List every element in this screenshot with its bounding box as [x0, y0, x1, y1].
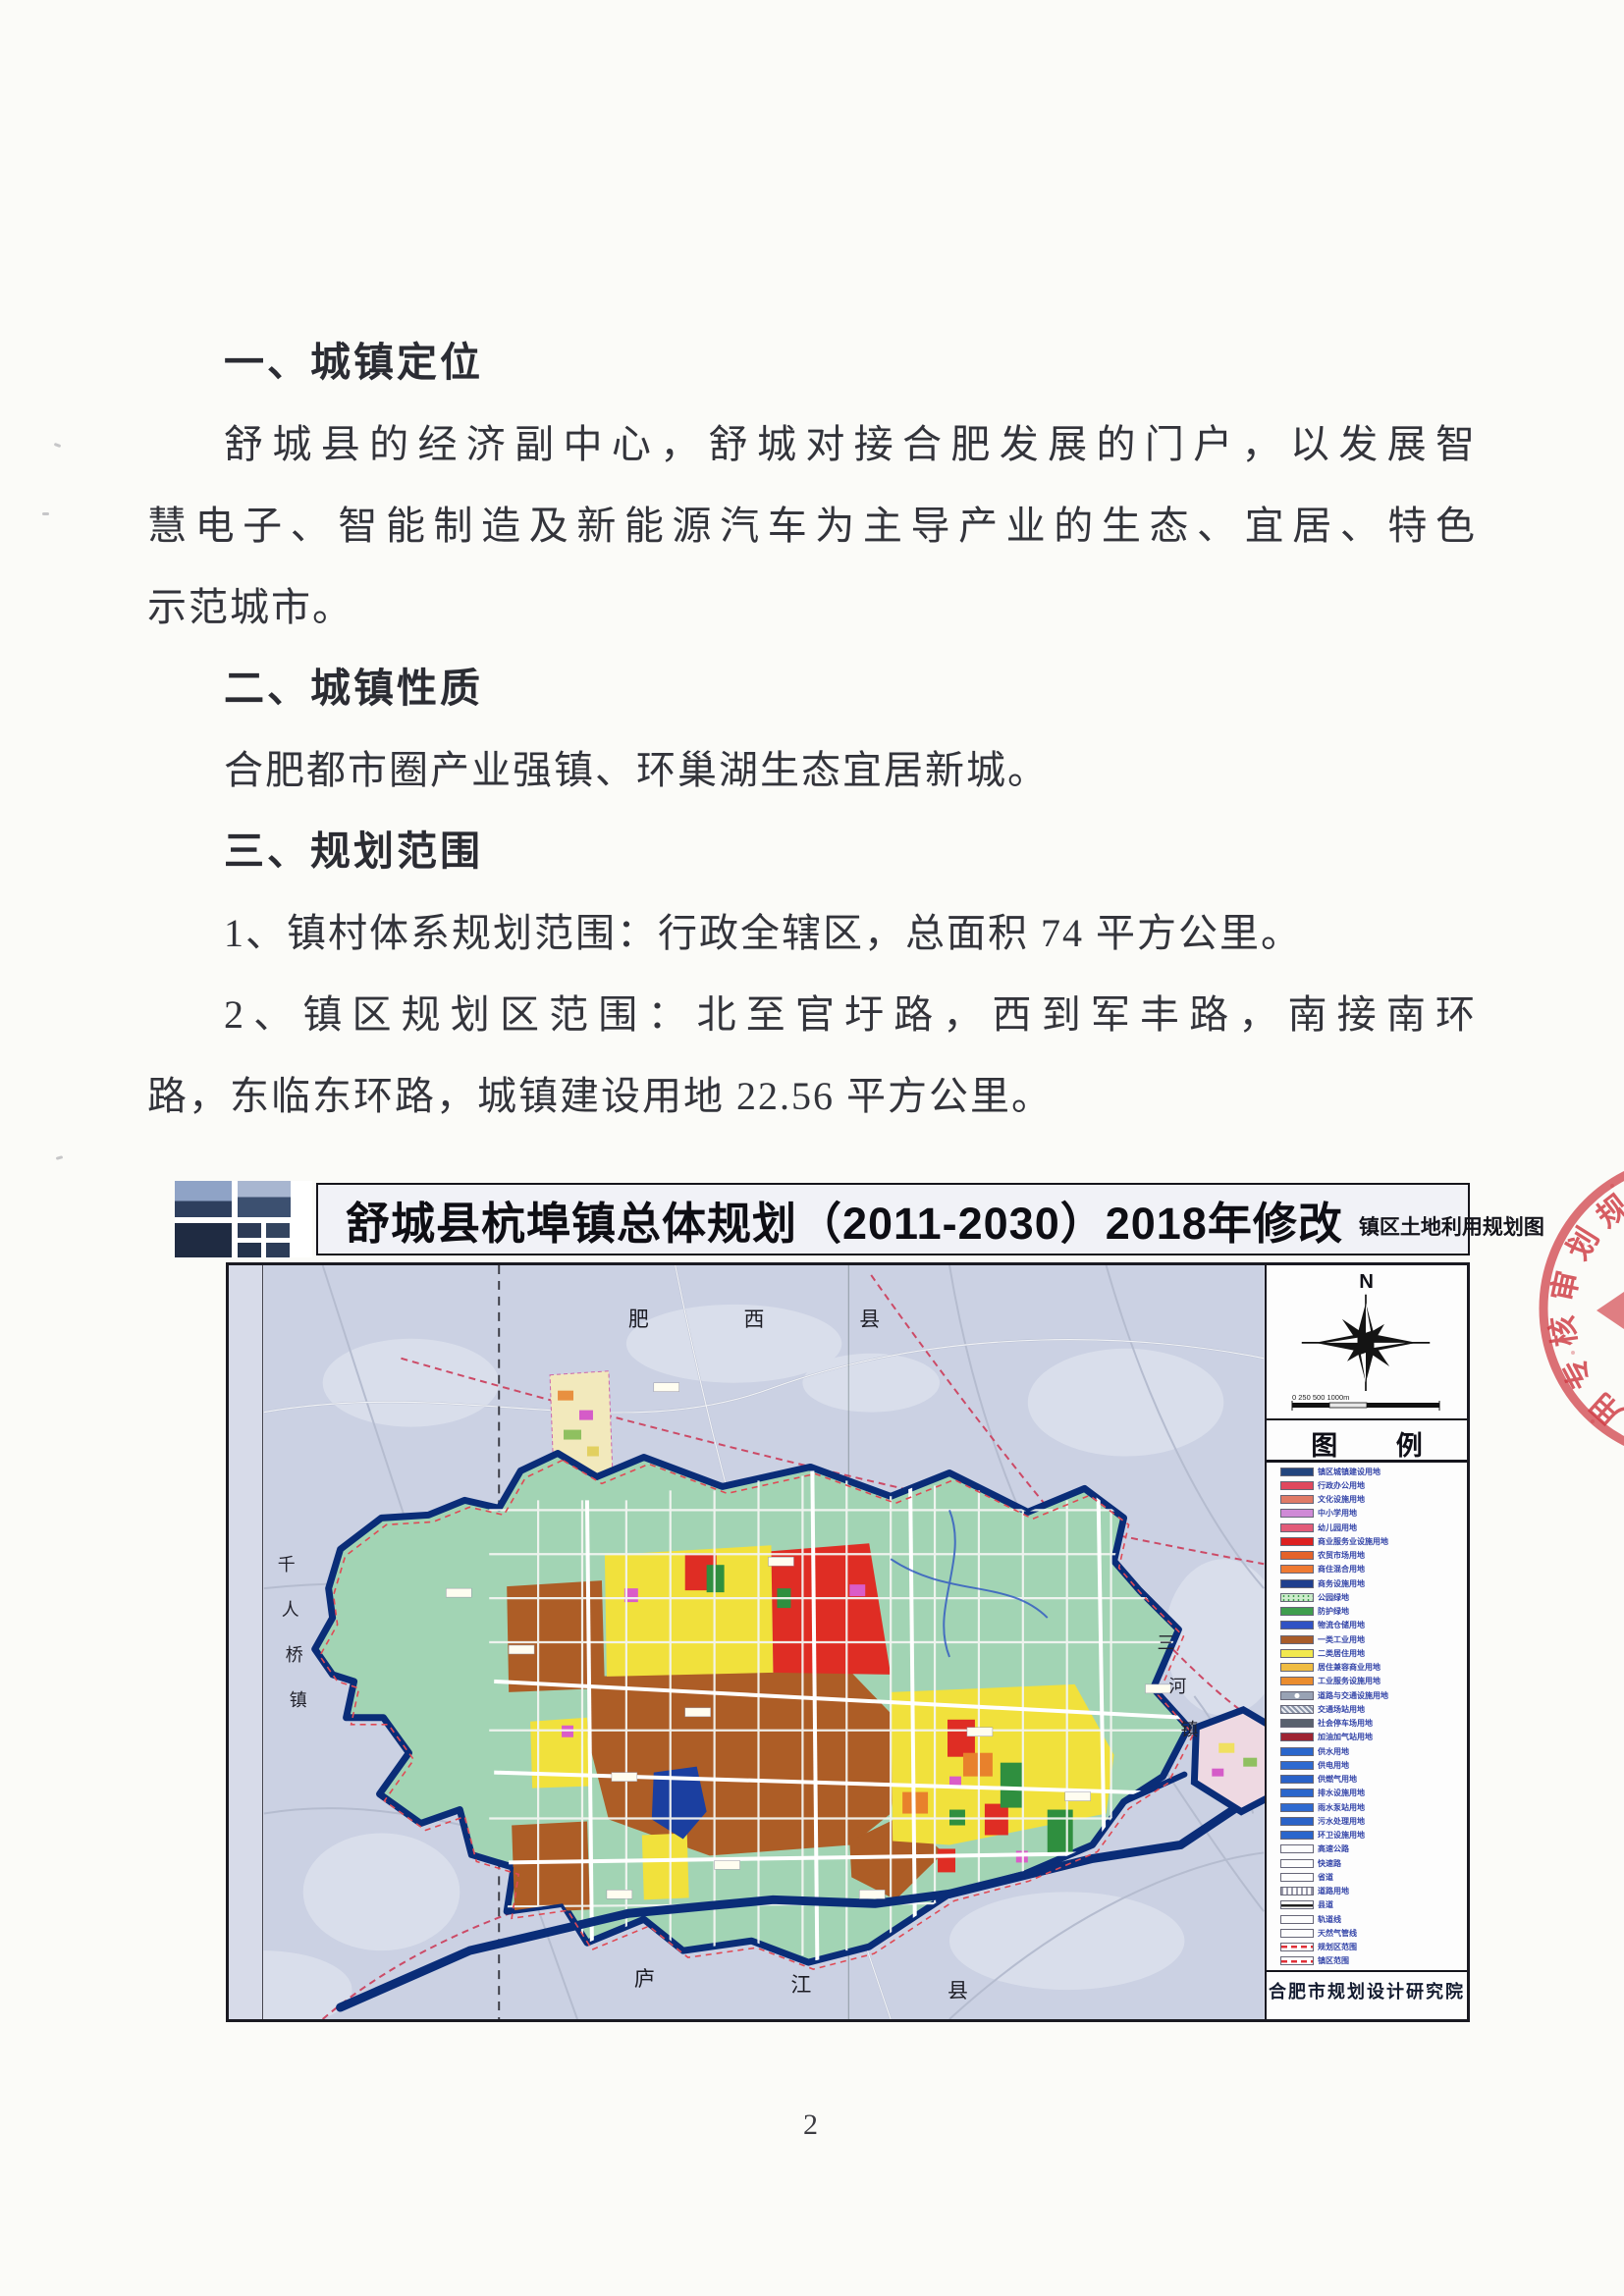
seal-character: 划 — [1553, 1218, 1607, 1267]
logo-tile — [238, 1181, 291, 1217]
body-text-line: 合肥都市圈产业强镇、环巢湖生态宜居新城。 — [147, 729, 1475, 811]
legend-swatch — [1280, 1523, 1314, 1532]
legend-title: 图 例 — [1267, 1424, 1467, 1463]
legend-panel: N 0 250 500 1000m 图 例 镇区城镇建设用地行政办公用地文化设施… — [1265, 1265, 1467, 2019]
body-text-line: 1、镇村体系规划范围：行政全辖区，总面积 74 平方公里。 — [147, 892, 1475, 974]
section-heading: 一、城镇定位 — [147, 322, 1475, 403]
legend-item: 排水设施用地 — [1267, 1787, 1467, 1800]
legend-item: 道路与交通设施用地 — [1267, 1688, 1467, 1702]
legend-item: 交通场站用地 — [1267, 1702, 1467, 1716]
seal-character: 用 — [1578, 1385, 1624, 1438]
legend-label: 环卫设施用地 — [1318, 1830, 1365, 1841]
legend-items: 镇区城镇建设用地行政办公用地文化设施用地中小学用地幼儿园用地商业服务业设施用地农… — [1267, 1465, 1467, 1968]
legend-swatch — [1280, 1579, 1314, 1588]
body-text-line: 路，东临东环路，城镇建设用地 22.56 平方公里。 — [147, 1055, 1475, 1137]
legend-item: 道路用地 — [1267, 1885, 1467, 1898]
legend-label: 加油加气站用地 — [1318, 1732, 1373, 1742]
logo-tile — [175, 1223, 232, 1257]
legend-swatch — [1280, 1537, 1314, 1546]
legend-swatch — [1280, 1621, 1314, 1629]
legend-swatch — [1280, 1481, 1314, 1490]
legend-label: 农贸市场用地 — [1318, 1550, 1365, 1561]
legend-label: 供水用地 — [1318, 1746, 1349, 1757]
legend-label: 一类工业用地 — [1318, 1634, 1365, 1645]
legend-swatch — [1280, 1844, 1314, 1853]
legend-label: 县道 — [1318, 1899, 1333, 1910]
body-text-line: 2、镇区规划区范围：北至官圩路，西到军丰路，南接南环 — [147, 974, 1475, 1055]
legend-item: 中小学用地 — [1267, 1507, 1467, 1521]
logo-tile — [238, 1223, 261, 1238]
legend-swatch — [1280, 1677, 1314, 1685]
legend-item: 二类居住用地 — [1267, 1646, 1467, 1660]
legend-divider — [1267, 1970, 1467, 1972]
legend-label: 公园绿地 — [1318, 1592, 1349, 1603]
legend-label: 交通场站用地 — [1318, 1704, 1365, 1715]
legend-item: 幼儿园用地 — [1267, 1521, 1467, 1534]
legend-item: 污水处理用地 — [1267, 1814, 1467, 1828]
legend-item: 社会停车场用地 — [1267, 1717, 1467, 1731]
seal-character: 审 — [1538, 1266, 1587, 1306]
town-label-char: 镇 — [1180, 1720, 1198, 1739]
legend-item: 快速路 — [1267, 1856, 1467, 1870]
town-label-char: 人 — [282, 1600, 299, 1620]
legend-item: 工业服务设施用地 — [1267, 1675, 1467, 1688]
county-label-char: 西 — [744, 1308, 765, 1331]
section-heading: 三、规划范围 — [147, 811, 1475, 892]
page-number: 2 — [803, 2109, 818, 2142]
body-text-line: 示范城市。 — [147, 566, 1475, 648]
legend-swatch — [1280, 1733, 1314, 1741]
legend-divider — [1267, 1460, 1467, 1463]
legend-swatch — [1280, 1859, 1314, 1868]
legend-item: 轨道线 — [1267, 1912, 1467, 1926]
county-label-char: 江 — [790, 1973, 811, 1997]
legend-item: 文化设施用地 — [1267, 1493, 1467, 1507]
legend-item: 环卫设施用地 — [1267, 1829, 1467, 1842]
scanned-document-page: 一、城镇定位舒城县的经济副中心，舒城对接合肥发展的门户，以发展智慧电子、智能制造… — [0, 0, 1624, 2296]
legend-swatch — [1280, 1943, 1314, 1951]
map-title-panel: 舒城县杭埠镇总体规划（2011-2030）2018年修改 镇区土地利用规划图 — [316, 1183, 1470, 1255]
legend-swatch — [1280, 1789, 1314, 1797]
county-label-char: 肥 — [628, 1308, 649, 1331]
legend-item: 高速公路 — [1267, 1842, 1467, 1856]
legend-item: 商务设施用地 — [1267, 1576, 1467, 1590]
legend-item: 供水用地 — [1267, 1744, 1467, 1758]
legend-label: 快速路 — [1318, 1858, 1341, 1869]
institute-logo — [175, 1181, 312, 1257]
legend-swatch — [1280, 1900, 1314, 1909]
logo-tile — [238, 1243, 261, 1257]
legend-label: 道路与交通设施用地 — [1318, 1690, 1388, 1701]
legend-swatch — [1280, 1705, 1314, 1714]
legend-swatch — [1280, 1551, 1314, 1560]
legend-label: 雨水泵站用地 — [1318, 1802, 1365, 1813]
legend-label: 商业服务业设施用地 — [1318, 1536, 1388, 1547]
seal-character: 核 — [1537, 1313, 1585, 1350]
legend-item: 公园绿地 — [1267, 1590, 1467, 1604]
legend-label: 高速公路 — [1318, 1843, 1349, 1854]
legend-divider — [1267, 1418, 1467, 1420]
town-label-char: 河 — [1168, 1677, 1186, 1696]
scan-speck — [56, 1155, 64, 1160]
map-frame: 肥 西 县 庐 江 县 三 河 镇 千 人 桥 镇 — [226, 1262, 1470, 2022]
legend-item: 供燃气用地 — [1267, 1773, 1467, 1787]
legend-item: 农贸市场用地 — [1267, 1549, 1467, 1563]
logo-tile — [175, 1181, 232, 1217]
legend-item: 省道 — [1267, 1870, 1467, 1884]
legend-item: 镇区范围 — [1267, 1954, 1467, 1968]
legend-item: 防护绿地 — [1267, 1605, 1467, 1619]
document-text-block: 一、城镇定位舒城县的经济副中心，舒城对接合肥发展的门户，以发展智慧电子、智能制造… — [147, 322, 1475, 1137]
section-heading: 二、城镇性质 — [147, 648, 1475, 729]
legend-swatch — [1280, 1509, 1314, 1518]
legend-label: 排水设施用地 — [1318, 1788, 1365, 1798]
legend-label: 供电用地 — [1318, 1760, 1349, 1771]
legend-label: 天然气管线 — [1318, 1928, 1357, 1939]
legend-swatch — [1280, 1663, 1314, 1672]
scan-speck — [54, 443, 62, 448]
legend-label: 幼儿园用地 — [1318, 1522, 1357, 1533]
body-text-line: 慧电子、智能制造及新能源汽车为主导产业的生态、宜居、特色 — [147, 485, 1475, 566]
legend-swatch — [1280, 1565, 1314, 1574]
legend-item: 商业服务业设施用地 — [1267, 1534, 1467, 1548]
legend-label: 居住兼容商业用地 — [1318, 1662, 1380, 1673]
legend-label: 二类居住用地 — [1318, 1648, 1365, 1659]
town-label-char: 镇 — [290, 1690, 307, 1710]
legend-item: 居住兼容商业用地 — [1267, 1661, 1467, 1675]
legend-swatch — [1280, 1831, 1314, 1840]
legend-item: 物流仓储用地 — [1267, 1619, 1467, 1632]
legend-label: 行政办公用地 — [1318, 1480, 1365, 1491]
legend-label: 供燃气用地 — [1318, 1774, 1357, 1785]
seal-character: 专 — [1548, 1352, 1601, 1399]
map-subtitle: 镇区土地利用规划图 — [1359, 1198, 1544, 1241]
legend-label: 商务设施用地 — [1318, 1578, 1365, 1589]
legend-swatch — [1280, 1719, 1314, 1728]
legend-item: 一类工业用地 — [1267, 1632, 1467, 1646]
logo-tile — [266, 1243, 290, 1257]
legend-swatch — [1280, 1915, 1314, 1924]
legend-label: 防护绿地 — [1318, 1606, 1349, 1617]
county-label-char: 县 — [859, 1308, 880, 1331]
legend-swatch — [1280, 1747, 1314, 1756]
legend-label: 中小学用地 — [1318, 1508, 1357, 1519]
legend-label: 规划区范围 — [1318, 1942, 1357, 1952]
legend-swatch — [1280, 1873, 1314, 1882]
legend-label: 物流仓储用地 — [1318, 1620, 1365, 1630]
legend-swatch — [1280, 1817, 1314, 1826]
legend-item: 商住混合用地 — [1267, 1563, 1467, 1576]
legend-swatch — [1280, 1775, 1314, 1784]
legend-swatch — [1280, 1761, 1314, 1770]
legend-item: 供电用地 — [1267, 1758, 1467, 1772]
legend-item: 行政办公用地 — [1267, 1478, 1467, 1492]
legend-label: 社会停车场用地 — [1318, 1718, 1373, 1729]
legend-label: 文化设施用地 — [1318, 1494, 1365, 1505]
legend-swatch — [1280, 1495, 1314, 1504]
compass-rose: N — [1282, 1271, 1449, 1391]
legend-label: 道路用地 — [1318, 1886, 1349, 1896]
scale-bar: 0 250 500 1000m — [1286, 1391, 1447, 1416]
publisher-name: 合肥市规划设计研究院 — [1267, 1978, 1467, 2003]
county-label-char: 庐 — [634, 1967, 655, 1991]
map-title: 舒城县杭埠镇总体规划（2011-2030）2018年修改 — [318, 1188, 1343, 1252]
seal-character: 规 — [1585, 1182, 1624, 1236]
legend-swatch — [1280, 1887, 1314, 1896]
scale-text: 0 250 500 1000m — [1292, 1393, 1349, 1402]
legend-label: 污水处理用地 — [1318, 1816, 1365, 1827]
legend-swatch — [1280, 1593, 1314, 1602]
legend-item: 天然气管线 — [1267, 1926, 1467, 1940]
legend-label: 镇区城镇建设用地 — [1318, 1467, 1380, 1477]
land-use-map: 肥 西 县 庐 江 县 三 河 镇 千 人 桥 镇 — [263, 1265, 1265, 2019]
legend-swatch — [1280, 1468, 1314, 1476]
town-label-char: 三 — [1157, 1633, 1174, 1653]
legend-item: 雨水泵站用地 — [1267, 1800, 1467, 1814]
legend-swatch — [1280, 1691, 1314, 1700]
legend-swatch — [1280, 1607, 1314, 1616]
legend-swatch — [1280, 1956, 1314, 1965]
legend-swatch — [1280, 1649, 1314, 1658]
seal-star-point — [1597, 1292, 1624, 1329]
legend-label: 省道 — [1318, 1872, 1333, 1883]
town-label-char: 桥 — [286, 1645, 303, 1665]
legend-swatch — [1280, 1929, 1314, 1938]
compass-n-label: N — [1359, 1271, 1374, 1293]
legend-swatch — [1280, 1635, 1314, 1644]
legend-item: 加油加气站用地 — [1267, 1731, 1467, 1744]
legend-swatch — [1280, 1803, 1314, 1812]
legend-label: 商住混合用地 — [1318, 1564, 1365, 1575]
legend-label: 镇区范围 — [1318, 1955, 1349, 1966]
logo-tile — [266, 1223, 290, 1238]
town-label-char: 千 — [278, 1555, 296, 1575]
legend-item: 规划区范围 — [1267, 1941, 1467, 1954]
legend-label: 工业服务设施用地 — [1318, 1676, 1380, 1686]
map-drawing: 肥 西 县 庐 江 县 三 河 镇 千 人 桥 镇 — [263, 1265, 1265, 2019]
legend-item: 县道 — [1267, 1898, 1467, 1912]
county-label-char: 县 — [947, 1979, 968, 2002]
legend-label: 轨道线 — [1318, 1914, 1341, 1925]
legend-item: 镇区城镇建设用地 — [1267, 1465, 1467, 1478]
body-text-line: 舒城县的经济副中心，舒城对接合肥发展的门户，以发展智 — [147, 403, 1475, 485]
scan-speck — [42, 512, 49, 515]
